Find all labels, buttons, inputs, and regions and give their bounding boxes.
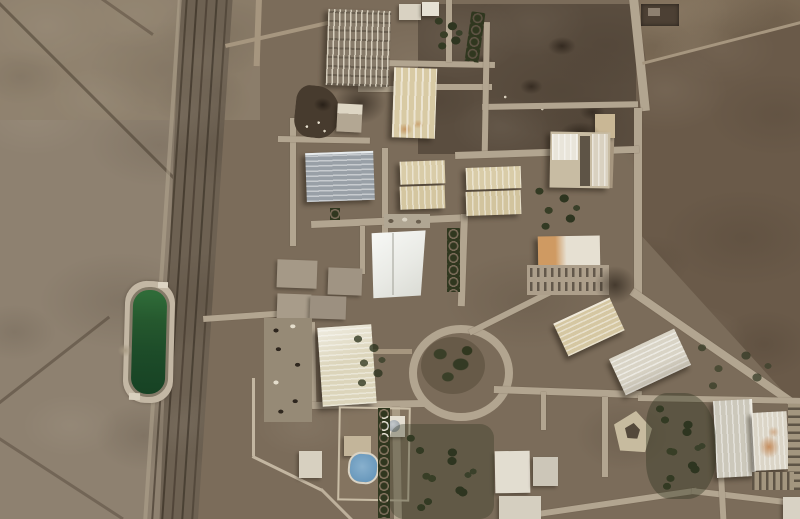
tent-roof-seam [392, 233, 394, 295]
warehouse-north [392, 67, 437, 138]
roundabout-vegetation [421, 337, 485, 394]
gray-block-3 [277, 293, 312, 320]
building-bottom-right-corner [783, 497, 800, 519]
complex-white-section [552, 134, 578, 160]
desert-light-patch [118, 344, 132, 357]
building-small-north [336, 103, 362, 132]
reservoir-structure-top [158, 282, 168, 288]
dark-plot-top-right [641, 4, 679, 26]
building-top-edge-1 [399, 4, 421, 20]
gray-block-4 [310, 295, 347, 319]
gray-block-1 [277, 259, 318, 288]
tree-grove-complex-southwest [527, 184, 589, 232]
tree-grove-right-2 [654, 408, 709, 488]
parking-right-rows [752, 472, 794, 490]
building-bottom-center-1 [495, 451, 531, 494]
building-bottom-center-2 [499, 496, 541, 519]
tree-row-south-road-west [378, 408, 390, 518]
warehouse-beige-b1 [466, 166, 522, 190]
warehouse-rust-tinted [538, 235, 601, 267]
parking-lot-southwest [264, 318, 312, 422]
substation-racks [326, 9, 392, 87]
warehouse-beige-b2 [466, 190, 522, 216]
complex-light-section [592, 134, 608, 186]
reservoir-water [131, 290, 168, 395]
tree-dots-roundabout-west [350, 330, 390, 390]
tree-row-road-x463 [447, 228, 460, 292]
warehouse-right-light [713, 399, 756, 478]
building-bottom-center-3 [533, 457, 558, 486]
dark-plot-structure [648, 8, 660, 16]
reservoir-structure-bottom [129, 393, 140, 400]
warehouse-beige-a1 [400, 160, 446, 185]
warehouse-gray-ribbed [305, 151, 375, 202]
building-top-edge-2 [422, 2, 439, 16]
road-x543 [541, 392, 546, 430]
road-x605 [602, 397, 608, 477]
warehouse-right-rust-stained [752, 411, 790, 471]
tent-north-annex-row [384, 214, 430, 228]
satellite-image-desert-facility [0, 0, 800, 519]
complex-shadow-south [594, 266, 636, 304]
complex-dark-band [580, 136, 590, 186]
tree-dots-northeast-warehouses [680, 340, 790, 392]
tree-grove-center-bottom-2 [404, 440, 484, 510]
road-x363 [360, 226, 365, 274]
white-tent-hall [368, 229, 428, 299]
tree-row-road-y218 [330, 208, 340, 220]
building-compound-west [299, 451, 322, 478]
warehouse-beige-a2 [400, 185, 446, 210]
gray-block-2 [328, 267, 363, 295]
perimeter-wall-vertical [252, 378, 255, 456]
tree-clump-top [432, 16, 466, 50]
